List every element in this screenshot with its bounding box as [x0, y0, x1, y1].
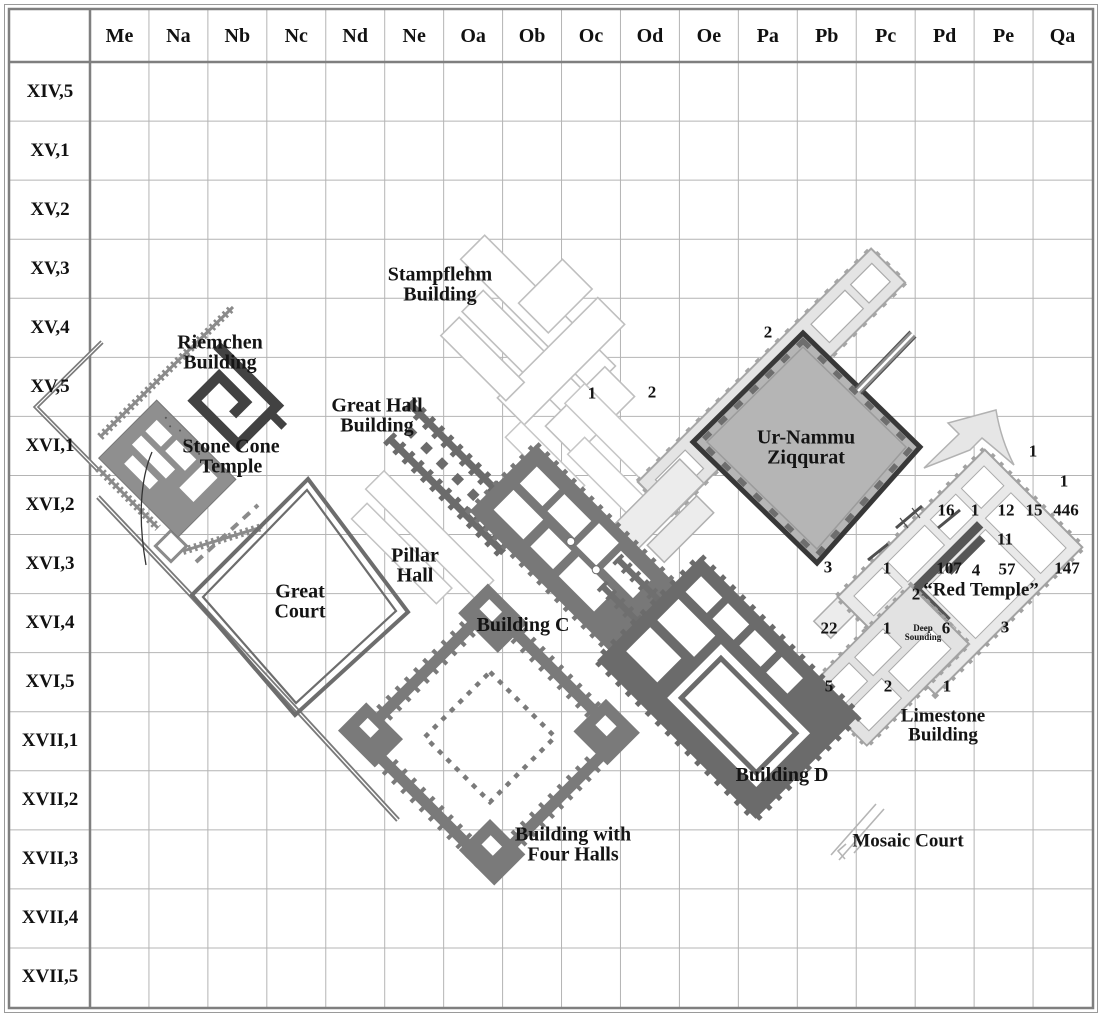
find-count: 2: [648, 384, 657, 401]
find-count: 16: [938, 502, 955, 519]
find-count: 5: [825, 678, 834, 695]
label-great-court: Great Court: [274, 582, 325, 623]
excavation-grid-map: MeNaNbNcNdNeOaObOcOdOePaPbPcPdPeQaXIV,5X…: [0, 0, 1102, 1017]
label-deep-sounding: Deep Sounding: [905, 624, 942, 642]
label-limestone-building: Limestone Building: [901, 707, 985, 746]
find-count: 147: [1054, 560, 1080, 577]
find-count: 1: [971, 502, 980, 519]
find-count: 1: [943, 678, 952, 695]
find-count: 3: [1001, 619, 1010, 636]
find-count: 446: [1053, 502, 1079, 519]
label-mosaic-court: Mosaic Court: [852, 831, 963, 850]
find-count: 2: [912, 586, 921, 603]
label-pillar-hall: Pillar Hall: [391, 546, 439, 587]
find-count: 1: [1060, 473, 1069, 490]
label-ur-nammu-ziqqurat: Ur-Nammu Ziqqurat: [757, 428, 855, 469]
find-count: 107: [936, 560, 962, 577]
find-count: 2: [884, 678, 893, 695]
find-count: 15: [1026, 502, 1043, 519]
label-building-c: Building C: [477, 615, 570, 635]
find-count: 22: [821, 620, 838, 637]
label-building-with-four-halls: Building with Four Halls: [515, 825, 631, 866]
find-count: 6: [942, 620, 951, 637]
find-count: 1: [883, 620, 892, 637]
label-great-hall-building: Great Hall Building: [331, 396, 422, 437]
find-count: 2: [764, 324, 773, 341]
label-stampflehm-building: Stampflehm Building: [388, 265, 492, 306]
find-count: 4: [972, 562, 981, 579]
find-count: 57: [999, 561, 1016, 578]
label-stone-cone-temple: Stone Cone Temple: [182, 437, 279, 478]
find-count: 1: [588, 385, 597, 402]
find-count: 1: [883, 560, 892, 577]
find-count: 1: [1029, 443, 1038, 460]
annotation-layer: Riemchen BuildingStone Cone TempleStampf…: [0, 0, 1102, 1017]
label-riemchen-building: Riemchen Building: [177, 333, 263, 374]
find-count: 3: [824, 559, 833, 576]
find-count: 12: [998, 502, 1015, 519]
label-red-temple: “Red Temple”: [923, 580, 1039, 599]
find-count: 11: [997, 531, 1013, 548]
label-building-d: Building D: [736, 765, 829, 785]
